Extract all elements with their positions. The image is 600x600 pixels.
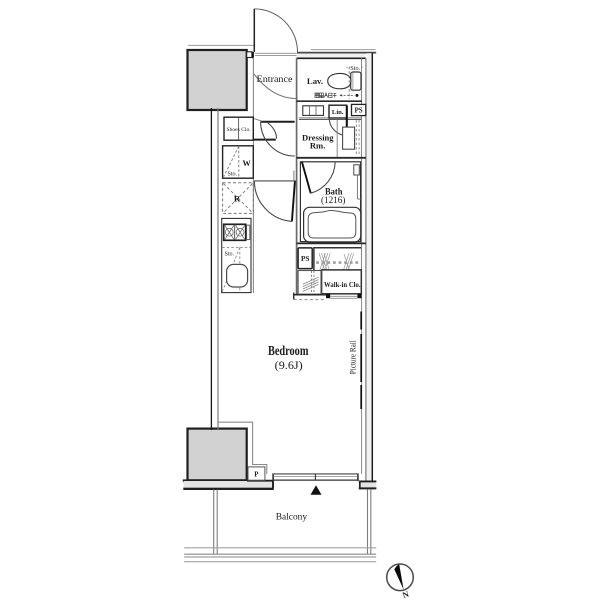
svg-text:Sto.: Sto.: [350, 65, 360, 72]
svg-text:Picture Rail: Picture Rail: [348, 340, 357, 375]
svg-text:Rm.: Rm.: [310, 140, 326, 150]
svg-text:Entrance: Entrance: [257, 74, 293, 84]
svg-text:Sto.: Sto.: [228, 172, 238, 178]
svg-text:P: P: [254, 472, 258, 479]
svg-text:Lin.: Lin.: [332, 109, 344, 116]
svg-text:Shoes Clo.: Shoes Clo.: [226, 127, 251, 133]
svg-text:R: R: [234, 194, 241, 204]
svg-text:(1216): (1216): [321, 195, 346, 205]
svg-text:Walk-in Clo.: Walk-in Clo.: [324, 280, 361, 289]
svg-text:Balcony: Balcony: [276, 512, 308, 522]
svg-text:PS: PS: [301, 255, 309, 263]
svg-text:Sto.: Sto.: [225, 251, 235, 257]
svg-text:(9.6J): (9.6J): [275, 358, 303, 372]
svg-text:Bedroom: Bedroom: [268, 344, 309, 359]
svg-text:PS: PS: [355, 107, 363, 115]
svg-text:Lav.: Lav.: [307, 76, 323, 86]
svg-text:W: W: [243, 159, 252, 168]
